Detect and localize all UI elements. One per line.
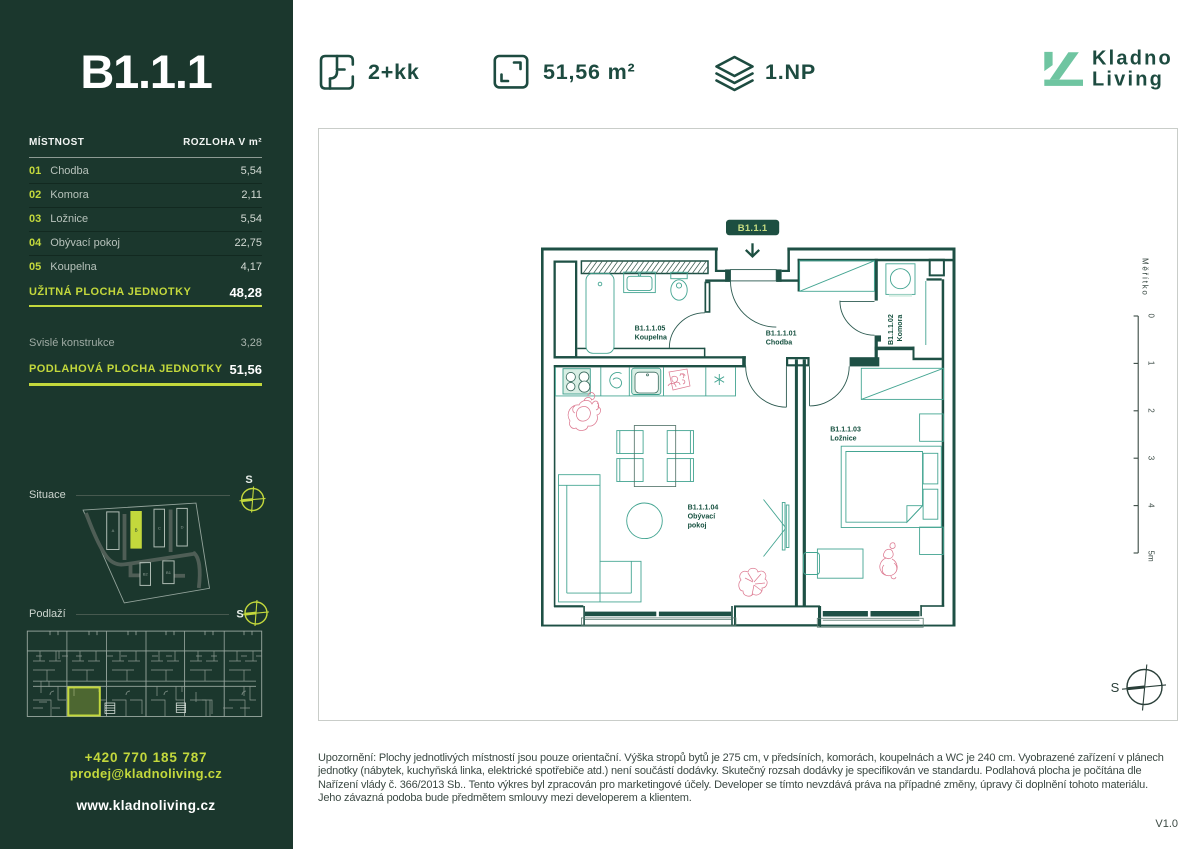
svg-text:0: 0 [1147, 314, 1156, 319]
svg-text:Obývací: Obývací [688, 513, 717, 521]
svg-text:Měřítko: Měřítko [1141, 258, 1150, 297]
svg-text:S: S [1111, 680, 1120, 695]
svg-text:B1.1.1.01: B1.1.1.01 [766, 330, 797, 338]
svg-text:2: 2 [1147, 408, 1156, 413]
svg-text:Chodba: Chodba [766, 339, 792, 347]
svg-text:B1.1.1.04: B1.1.1.04 [688, 504, 719, 512]
svg-text:B1.1.1.02: B1.1.1.02 [887, 314, 895, 345]
svg-text:4: 4 [1147, 503, 1156, 508]
svg-text:Koupelna: Koupelna [635, 334, 667, 342]
svg-text:Ložnice: Ložnice [830, 435, 856, 443]
svg-text:pokoj: pokoj [688, 522, 707, 530]
svg-text:B1.1.1.03: B1.1.1.03 [830, 426, 861, 434]
svg-text:B1.1.1: B1.1.1 [738, 223, 768, 234]
svg-text:5m: 5m [1147, 551, 1156, 562]
svg-text:1: 1 [1147, 361, 1156, 366]
svg-text:3: 3 [1147, 456, 1156, 461]
svg-text:B1.1.1.05: B1.1.1.05 [635, 325, 666, 333]
svg-text:Komora: Komora [896, 315, 904, 342]
